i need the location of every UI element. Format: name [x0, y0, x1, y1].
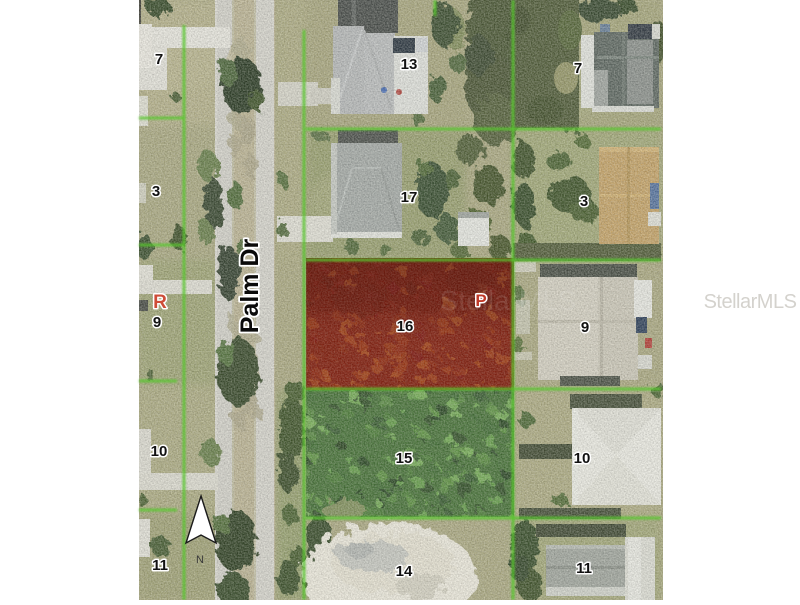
svg-text:N: N [196, 554, 204, 566]
svg-text:15: 15 [396, 450, 413, 467]
svg-text:11: 11 [152, 557, 168, 574]
svg-text:9: 9 [153, 314, 161, 331]
svg-text:11: 11 [576, 560, 592, 577]
svg-text:7: 7 [574, 60, 582, 77]
svg-text:StellarMLS: StellarMLS [704, 291, 797, 313]
svg-text:14: 14 [396, 563, 413, 580]
svg-text:3: 3 [580, 193, 588, 210]
svg-text:16: 16 [397, 318, 414, 335]
svg-text:3: 3 [152, 183, 160, 200]
svg-text:R: R [153, 292, 167, 313]
svg-text:9: 9 [581, 319, 589, 336]
svg-text:StellarMLS: StellarMLS [440, 285, 577, 316]
svg-text:13: 13 [401, 56, 418, 73]
svg-text:17: 17 [401, 189, 418, 206]
svg-text:7: 7 [155, 51, 163, 68]
svg-text:Palm Dr: Palm Dr [236, 238, 264, 333]
svg-text:P: P [475, 291, 486, 310]
svg-text:10: 10 [151, 443, 168, 460]
svg-text:10: 10 [574, 450, 591, 467]
